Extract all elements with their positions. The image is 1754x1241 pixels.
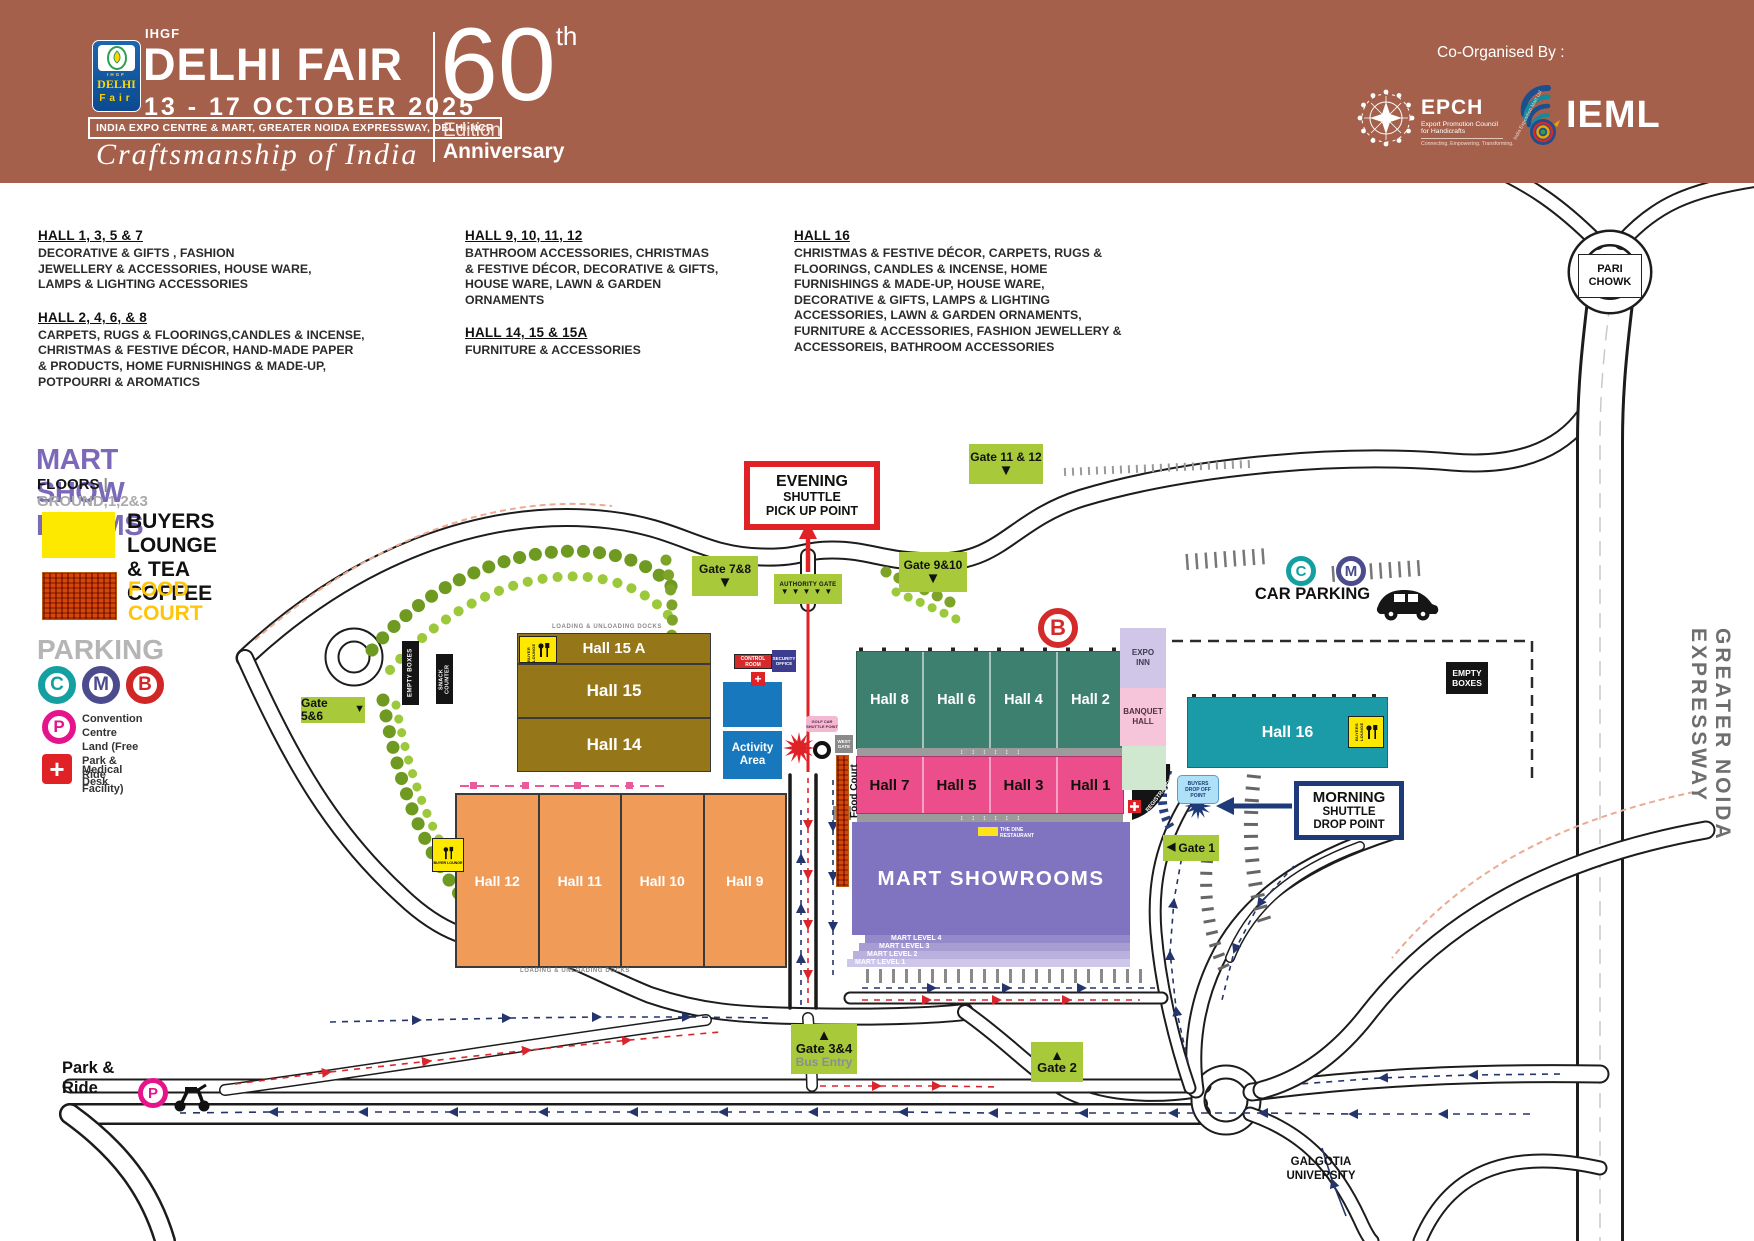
cutlery-icon [537,642,551,658]
buyers-drop-off-label: BUYERS DROP OFF POINT [1177,775,1219,804]
buyers-lounge-swatch [42,512,115,558]
hall-label: Hall 6 [937,692,976,708]
gate-3-4-sign: ▲ Gate 3&4 Bus Entry [791,1024,857,1074]
hall-9: Hall 9 [705,795,786,966]
bus-entry-label: Bus Entry [796,1056,853,1069]
hall-info-column-1: HALL 1, 3, 5 & 7 DECORATIVE & GIFTS , FA… [38,228,438,407]
hall-2: Hall 2 [1058,652,1123,748]
logo-delhi-text: DELHI [93,77,140,92]
morning-line2: SHUTTLE [1322,806,1375,819]
banquet-hall: BANQUET HALL [1120,688,1166,746]
arrow-down-icon: ▼ [718,576,733,589]
activity-block-upper [723,682,782,727]
anniversary-label: Anniversary [443,140,564,164]
evening-line1: EVENING [776,473,848,491]
mart-level-4: MART LEVEL 4 [865,935,1130,943]
hall-info-1357: HALL 1, 3, 5 & 7 DECORATIVE & GIFTS , FA… [38,228,438,293]
expressway-label: GREATER NOIDA EXPRESSWAY [1686,628,1734,938]
parking-title: PARKING [37,634,164,666]
activity-label: Activity Area [723,742,782,768]
parking-m-icon: M [82,666,120,704]
hall-10: Hall 10 [622,795,705,966]
hall-5: Hall 5 [924,757,991,813]
floors-sep: | [104,476,108,493]
hall-info-body: DECORATIVE & GIFTS , FASHION JEWELLERY &… [38,246,438,293]
hall-6: Hall 6 [924,652,991,748]
logo-fair-text: Fair [93,93,140,104]
mart-level-3: MART LEVEL 3 [859,943,1130,951]
mart-level-2: MART LEVEL 2 [853,951,1130,959]
dine-label: THE DINE RESTAURANT [1000,827,1034,839]
delhi-fair-logo: IHGF DELHI Fair [92,40,141,112]
edition-label: Edition [443,120,501,142]
hall-15: Hall 15 [518,665,710,717]
ieml-name: IEML [1566,94,1661,137]
hall-info-title: HALL 14, 15 & 15A [465,325,765,340]
dine-swatch [978,827,998,836]
hall-label: Hall 1 [1070,777,1110,794]
hall-label: Hall 15 A [583,640,646,657]
hall-label: Hall 4 [1004,692,1043,708]
delhi-fair-venue-map-poster: { "header": { "ihgf": "IHGF", "title": "… [0,0,1754,1241]
empty-boxes-left: EMPTY BOXES [402,641,419,705]
buyer-lounge-icon-15a: BUYER LOUNGE [519,636,557,663]
mart-label: MART SHOWROOMS [877,867,1104,891]
mart-showrooms: MART SHOWROOMS THE DINE RESTAURANT [852,822,1130,935]
buyer-lounge-icon-hall12: BUYER LOUNGE [432,838,464,872]
arrow-down-icon: ▼ [999,464,1014,477]
arrow-down-icon: ▼ [354,704,365,716]
hall-3: Hall 3 [991,757,1058,813]
fair-title: DELHI FAIR [143,42,403,87]
hall-12: Hall 12 [457,795,540,966]
loading-docks-label-top: LOADING & UNLOADING DOCKS [552,624,662,630]
hall-info-column-3: HALL 16 CHRISTMAS & FESTIVE DÉCOR, CARPE… [794,228,1154,372]
hall-info-title: HALL 1, 3, 5 & 7 [38,228,438,243]
hall-info-body: CARPETS, RUGS & FLOORINGS,CANDLES & INCE… [38,328,438,390]
co-organised-label: Co-Organised By : [1437,44,1565,62]
hall-label: Hall 8 [870,692,909,708]
buyers-lounge-text: BUYERS LOUNGE [1354,717,1364,747]
hall-info-title: HALL 9, 10, 11, 12 [465,228,765,243]
parking-c-icon: C [38,666,76,704]
ieml-logo-icon: India Exposition Mart Ltd [1510,80,1564,154]
hall-7: Hall 7 [857,757,924,813]
gate-5-6-sign: Gate 5&6 ▼ [301,697,365,723]
buyers-lounge-icon-hall16: BUYERS LOUNGE [1348,716,1384,748]
snack-counter-box: SNACK COUNTER [436,654,453,704]
authority-gate-sign: AUTHORITY GATE ▼▼▼▼▼ [774,574,842,604]
west-gate-box: WEST GATE [835,735,853,753]
hall-label: Hall 11 [558,873,602,889]
hall-14: Hall 14 [518,719,710,771]
parking-p-icon: P [42,710,76,744]
pari-chowk-box: PARI CHOWK [1578,254,1642,298]
medical-desk-label: Medical Desk [82,764,122,788]
hall-info-body: FURNITURE & ACCESSORIES [465,343,765,359]
parking-m-map-icon: M [1336,556,1366,586]
orange-halls-block: Hall 12 Hall 11 Hall 10 Hall 9 [455,793,787,968]
chevrons-down-icon: ▼▼▼▼▼ [781,588,836,596]
green-halls-row: Hall 8 Hall 6 Hall 4 Hall 2 [857,652,1123,748]
galgotia-university-label: GALGOTIA UNIVERSITY [1266,1150,1376,1188]
car-parking-label: CAR PARKING [1240,585,1385,603]
evening-star-burst [783,732,815,764]
hall-label: Hall 5 [936,777,976,794]
buyer-lounge-text: BUYER LOUNGE [434,861,463,865]
hall-info-9101112: HALL 9, 10, 11, 12 BATHROOM ACCESSORIES,… [465,228,765,308]
gate-9-10-sign: Gate 9&10 ▼ [899,552,967,592]
hall-label: Hall 3 [1003,777,1043,794]
expo-inn: EXPO INN [1120,628,1166,688]
hall-label: Hall 16 [1262,724,1314,742]
evening-line2: SHUTTLE [783,490,841,504]
gate-2-sign: ▲ Gate 2 [1031,1042,1083,1082]
floors-value: GROUND,1,2&3 [37,493,148,510]
gate-label: Gate 5&6 [301,697,351,722]
hall-label: Hall 2 [1071,692,1110,708]
food-court-label: FOOD COURT [128,578,203,626]
park-ride-label: Park & Ride [62,1058,114,1098]
hall-label: Hall 15 [587,681,642,701]
hall-11: Hall 11 [540,795,623,966]
medical-desk-icon: + [42,754,72,784]
cutlery-icon [442,846,455,860]
header-divider [433,32,435,162]
food-court-label: Food Court [849,758,860,818]
hall-4: Hall 4 [991,652,1058,748]
hall-label: Hall 9 [726,873,763,889]
hall-label: Hall 14 [587,735,642,755]
medical-cross-map: + [751,672,765,686]
legend-floors-line: FLOORS | GROUND,1,2&3 [37,476,148,510]
hall-8: Hall 8 [857,652,924,748]
floors-label: FLOORS [37,476,100,493]
golf-cart-label: GOLF CAR SHUTTLE POINT [806,716,838,732]
edition-60: 60th [440,16,577,115]
tagline: Craftsmanship of India [96,138,418,172]
epch-rule [1421,138,1503,139]
hall-info-title: HALL 2, 4, 6, & 8 [38,310,438,325]
hall-info-141515a: HALL 14, 15 & 15A FURNITURE & ACCESSORIE… [465,325,765,359]
hall-1: Hall 1 [1058,757,1123,813]
map-roads-layer: REGISTRATION LOBBY [0,0,1754,1241]
hall-16: Hall 16 BUYERS LOUNGE [1188,698,1387,767]
banquet-lawn [1122,746,1166,790]
hall-info-title: HALL 16 [794,228,1154,243]
security-office-box: SECURITY OFFICE [772,650,796,672]
cutlery-icon [1365,724,1379,740]
dock-strip-1: ↕ ↕ ↕ ↕ ↕ ↕ [857,748,1123,757]
parking-b-map-icon: B [1038,608,1078,648]
gate-7-8-sign: Gate 7&8 ▼ [692,556,758,596]
header-banner: IHGF DELHI Fair IHGF DELHI FAIR 13 - 17 … [0,0,1754,183]
gate-1-sign: ◀ Gate 1 [1163,835,1219,861]
epch-logo-icon [1356,84,1416,152]
evening-line3: PICK UP POINT [766,504,858,518]
parking-b-icon: B [126,666,164,704]
empty-boxes-right: EMPTY BOXES [1446,662,1488,694]
buyer-lounge-text: BUYER LOUNGE [526,637,536,662]
mart-level-1: MART LEVEL 1 [847,959,1130,967]
parking-c-map-icon: C [1286,556,1316,586]
car-icon [1377,590,1438,621]
control-room-box: CONTROL ROOM [734,654,772,669]
loading-docks-label-bottom: LOADING & UNLOADING DOCKS [520,968,630,974]
morning-line3: DROP POINT [1313,819,1384,832]
evening-shuttle-box: EVENING SHUTTLE PICK UP POINT [744,461,880,530]
gate-label: Gate 3&4 [796,1042,852,1056]
park-ride-p-icon: P [138,1078,168,1108]
pink-halls-row: Hall 7 Hall 5 Hall 3 Hall 1 [857,757,1123,813]
arrow-left-icon: ◀ [1167,842,1175,854]
hall-label: Hall 12 [475,873,520,889]
gate-11-12-sign: Gate 11 & 12 ▼ [969,444,1043,484]
logo-leaf-icon [105,46,129,70]
morning-shuttle-box: MORNING SHUTTLE DROP POINT [1294,781,1404,840]
gate-label: Gate 2 [1037,1061,1077,1075]
food-court-swatch [42,572,117,620]
hall-info-column-2: HALL 9, 10, 11, 12 BATHROOM ACCESSORIES,… [465,228,765,376]
p-line1: Convention Centre [82,712,143,740]
hall-label: Hall 7 [869,777,909,794]
dine-restaurant: THE DINE RESTAURANT [978,827,1034,839]
edition-sup: th [556,21,578,51]
hall-info-2468: HALL 2, 4, 6, & 8 CARPETS, RUGS & FLOORI… [38,310,438,390]
gate-label: Gate 1 [1178,842,1215,855]
hall-info-16: HALL 16 CHRISTMAS & FESTIVE DÉCOR, CARPE… [794,228,1154,355]
hall-info-body: BATHROOM ACCESSORIES, CHRISTMAS & FESTIV… [465,246,765,308]
hall-label: Hall 10 [640,873,685,889]
activity-area: Activity Area [723,731,782,779]
arrow-down-icon: ▼ [926,572,941,585]
food-court-strip [836,755,849,887]
edition-number: 60 [440,7,556,123]
hall-info-body: CHRISTMAS & FESTIVE DÉCOR, CARPETS, RUGS… [794,246,1154,355]
morning-line1: MORNING [1313,790,1386,807]
